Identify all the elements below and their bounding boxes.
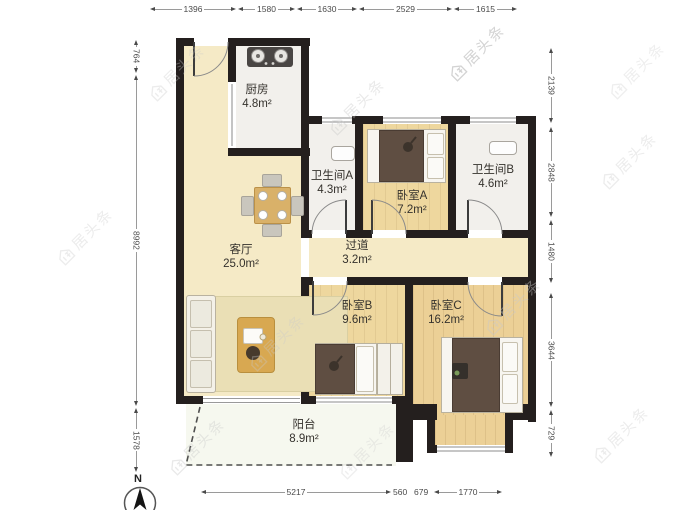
dim-right-1: 2848 (546, 127, 556, 217)
bed-b-pillow (356, 346, 374, 392)
dining-chair (262, 224, 282, 237)
sofa-cushion (190, 330, 212, 358)
dim-line (551, 53, 552, 74)
floor-plan-canvas: 厨房 4.8m² 卫生间A 4.3m² 卧室A 7.2m² 卫生间B 4.6m²… (0, 0, 680, 510)
bed-a-pillow (427, 157, 444, 179)
wall (392, 396, 413, 404)
dim-line (551, 263, 552, 278)
dim-arrow (134, 467, 138, 472)
bed-c-pillow (502, 374, 518, 404)
wall (176, 38, 184, 404)
compass-circle (125, 488, 156, 510)
window (316, 396, 392, 404)
dim-line (551, 298, 552, 339)
dim-top-1: 1580 (238, 4, 295, 14)
dim-arrow (134, 68, 138, 73)
dim-arrow (352, 7, 357, 11)
dim-line (136, 451, 137, 467)
dim-line (136, 413, 137, 429)
watermark-house-icon (52, 242, 79, 269)
dim-arrow (512, 7, 517, 11)
dim-bottom-1: 560 (391, 487, 412, 497)
dim-line (243, 9, 255, 10)
dim-line (479, 492, 497, 493)
bed-a-pillow (427, 133, 444, 155)
wall (352, 116, 383, 124)
dim-right-0: 2139 (546, 48, 556, 123)
room-label-bedroom-c: 卧室C 16.2m² (428, 300, 464, 328)
room-label-hallway: 过道 3.2m² (342, 240, 371, 268)
compass-needle (134, 488, 147, 510)
dining-chair (262, 174, 282, 187)
washbasin (331, 146, 355, 161)
wall (301, 277, 313, 285)
bed-c-pillow (502, 342, 518, 372)
dim-bottom-3: 1770 (434, 487, 502, 497)
watermark: 居头条 (595, 127, 661, 193)
wall (448, 124, 456, 230)
dim-line (551, 225, 552, 240)
bed-c-blanket (452, 338, 500, 412)
bed-a-blanket (379, 130, 424, 182)
dim-top-4: 1615 (454, 4, 517, 14)
dim-line (417, 9, 447, 10)
dim-line (136, 252, 137, 401)
dining-chair (241, 196, 254, 216)
sofa-cushion (190, 300, 212, 328)
wall (502, 277, 536, 285)
dim-line (364, 9, 394, 10)
dim-line (136, 80, 137, 229)
dim-line (206, 492, 285, 493)
wall (528, 116, 536, 422)
watermark-house-icon (596, 166, 623, 193)
wall (228, 46, 236, 82)
dim-left-0: 764 (131, 40, 141, 73)
dim-line (278, 9, 290, 10)
wall (502, 230, 536, 238)
dim-arrow (549, 278, 553, 283)
dim-top-2: 1630 (297, 4, 357, 14)
dim-arrow (497, 490, 502, 494)
room-label-balcony: 阳台 8.9m² (289, 419, 318, 447)
dim-line (302, 9, 316, 10)
bedroom-c-baywindow-floor (435, 415, 505, 447)
wall (427, 445, 437, 453)
dim-line (459, 9, 474, 10)
sofa-cushion (190, 360, 212, 388)
wall (346, 230, 372, 238)
dim-right-3: 3644 (546, 293, 556, 407)
wall (355, 124, 363, 230)
watermark-house-icon (444, 58, 471, 85)
window (437, 445, 505, 453)
wardrobe (377, 343, 403, 395)
wall (228, 148, 310, 156)
dim-line (338, 9, 352, 10)
dim-line (155, 9, 182, 10)
dining-chair (291, 196, 304, 216)
room-label-bedroom-b: 卧室B 9.6m² (342, 300, 373, 328)
dim-line (204, 9, 231, 10)
coffee-table-tray (243, 328, 263, 344)
dim-arrow (447, 7, 452, 11)
watermark-house-icon (588, 440, 615, 467)
dim-line (551, 97, 552, 118)
dim-line (307, 492, 386, 493)
watermark: 居头条 (443, 19, 509, 85)
washbasin (489, 141, 517, 155)
dim-right-2: 1480 (546, 220, 556, 283)
dim-arrow (134, 401, 138, 406)
dim-top-0: 1396 (150, 4, 236, 14)
bed-b-blanket (315, 344, 355, 394)
wall (505, 445, 513, 453)
dim-arrow (549, 402, 553, 407)
room-label-living: 客厅 25.0m² (223, 244, 259, 272)
coffee-table (237, 317, 275, 373)
balcony-threshold (203, 399, 300, 403)
wall (441, 116, 470, 124)
window (470, 116, 516, 124)
watermark-house-icon (604, 76, 631, 103)
dim-arrow (549, 118, 553, 123)
dim-line (497, 9, 512, 10)
watermark-house-icon (144, 78, 171, 105)
dining-table (254, 187, 291, 224)
dim-arrow (290, 7, 295, 11)
watermark: 居头条 (51, 203, 117, 269)
wall (176, 396, 203, 404)
room-label-kitchen: 厨房 4.8m² (242, 84, 271, 112)
dim-line (439, 492, 457, 493)
dim-top-3: 2529 (359, 4, 452, 14)
dim-left-1: 8992 (131, 75, 141, 406)
dim-arrow (549, 452, 553, 457)
wall (228, 38, 310, 46)
dim-line (551, 183, 552, 212)
wall (301, 230, 312, 238)
dim-left-2: 1578 (131, 408, 141, 472)
wall (303, 116, 322, 124)
wall (347, 277, 468, 285)
dim-line (551, 132, 552, 161)
wall (301, 396, 316, 404)
watermark: 居头条 (603, 37, 669, 103)
wall (406, 230, 468, 238)
window (322, 116, 352, 124)
watermark: 居头条 (587, 401, 653, 467)
dim-arrow (549, 212, 553, 217)
wall (405, 285, 413, 404)
dim-line (551, 443, 552, 452)
dim-bottom-0: 5217 (201, 487, 391, 497)
dim-line (551, 415, 552, 424)
room-label-bedroom-a: 卧室A 7.2m² (397, 190, 428, 218)
room-label-bathroom-b: 卫生间B 4.6m² (472, 164, 514, 192)
dim-arrow (231, 7, 236, 11)
dim-right-4: 729 (546, 410, 556, 457)
dim-line (551, 361, 552, 402)
room-label-bathroom-a: 卫生间A 4.3m² (311, 170, 353, 198)
window (383, 116, 441, 124)
dim-bottom-2: 679 (412, 487, 433, 497)
compass-north-label: N (134, 473, 142, 485)
